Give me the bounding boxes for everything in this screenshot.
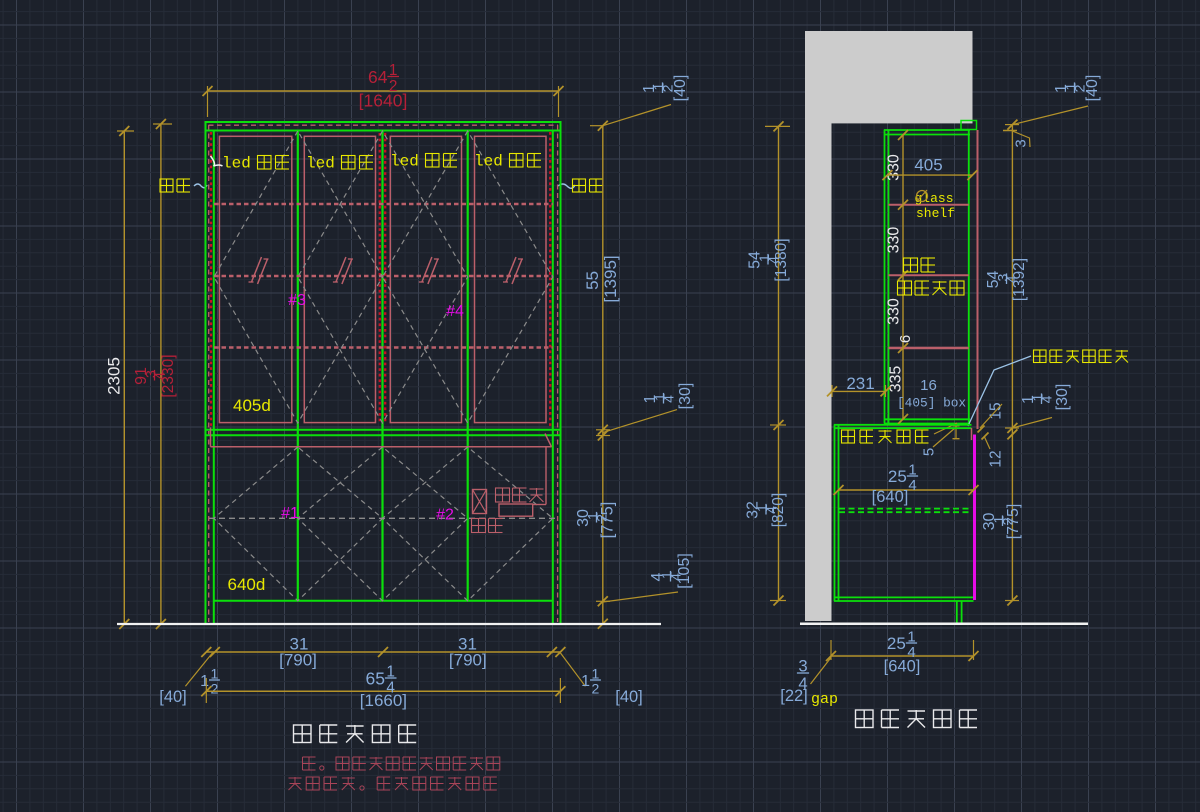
svg-text:64: 64 [368,67,388,87]
svg-text:65: 65 [366,668,385,688]
svg-text:[40]: [40] [1084,75,1101,102]
svg-text:3: 3 [1012,139,1029,147]
svg-text:led: led [474,153,503,171]
svg-text:#4: #4 [446,303,464,320]
svg-text:[30]: [30] [1054,384,1071,411]
svg-text:1: 1 [200,673,209,690]
svg-text:gap: gap [811,691,838,708]
svg-text:[775]: [775] [1005,504,1022,540]
svg-text:[1395]: [1395] [601,255,620,302]
svg-text:[790]: [790] [279,651,317,670]
svg-text:6: 6 [897,335,914,343]
svg-text:[2330]: [2330] [160,354,177,397]
svg-text:2: 2 [591,680,599,696]
svg-text:[40]: [40] [159,688,187,706]
svg-text:4: 4 [908,477,916,494]
svg-text:shelf: shelf [916,206,955,221]
svg-text:25: 25 [887,634,906,653]
svg-text:[405] box: [405] box [897,396,966,411]
svg-text:led: led [222,155,251,173]
svg-text:[640]: [640] [872,488,909,506]
svg-text:4: 4 [1038,395,1054,403]
svg-text:25: 25 [888,467,907,486]
svg-text:2305: 2305 [104,357,123,395]
svg-text:2: 2 [210,680,218,696]
svg-text:[40]: [40] [672,75,689,102]
svg-text:[1380]: [1380] [773,238,790,281]
svg-text:[1640]: [1640] [359,91,408,111]
svg-text:231: 231 [846,374,874,393]
svg-text:[1660]: [1660] [360,691,407,710]
svg-text:1: 1 [581,673,590,690]
svg-text:#2: #2 [436,507,454,524]
svg-text:330: 330 [886,298,903,325]
svg-text:640d: 640d [228,575,266,594]
svg-text:[22]: [22] [780,687,808,705]
svg-text:405d: 405d [233,396,271,415]
svg-text:1: 1 [591,666,599,682]
svg-text:[640]: [640] [884,658,921,676]
svg-text:[790]: [790] [449,651,487,670]
svg-text:5: 5 [920,448,937,456]
svg-text:405: 405 [914,156,942,175]
svg-text:glass: glass [915,191,954,206]
svg-text:#1: #1 [281,505,299,522]
svg-text:330: 330 [886,227,903,254]
svg-text:[775]: [775] [598,502,616,539]
svg-text:[1392]: [1392] [1011,258,1028,301]
svg-text:led: led [306,155,335,173]
svg-text:4: 4 [660,395,676,403]
svg-text:330: 330 [886,154,903,181]
svg-text:16: 16 [920,377,937,394]
svg-text:[105]: [105] [676,553,693,589]
svg-text:#3: #3 [288,292,306,309]
svg-text:[40]: [40] [615,688,643,706]
svg-text:[30]: [30] [677,383,694,410]
svg-text:[820]: [820] [770,493,787,527]
svg-text:1: 1 [210,666,218,682]
svg-text:335: 335 [888,366,905,393]
svg-text:55: 55 [583,271,602,290]
svg-text:12: 12 [988,450,1005,467]
svg-text:led: led [390,153,419,171]
